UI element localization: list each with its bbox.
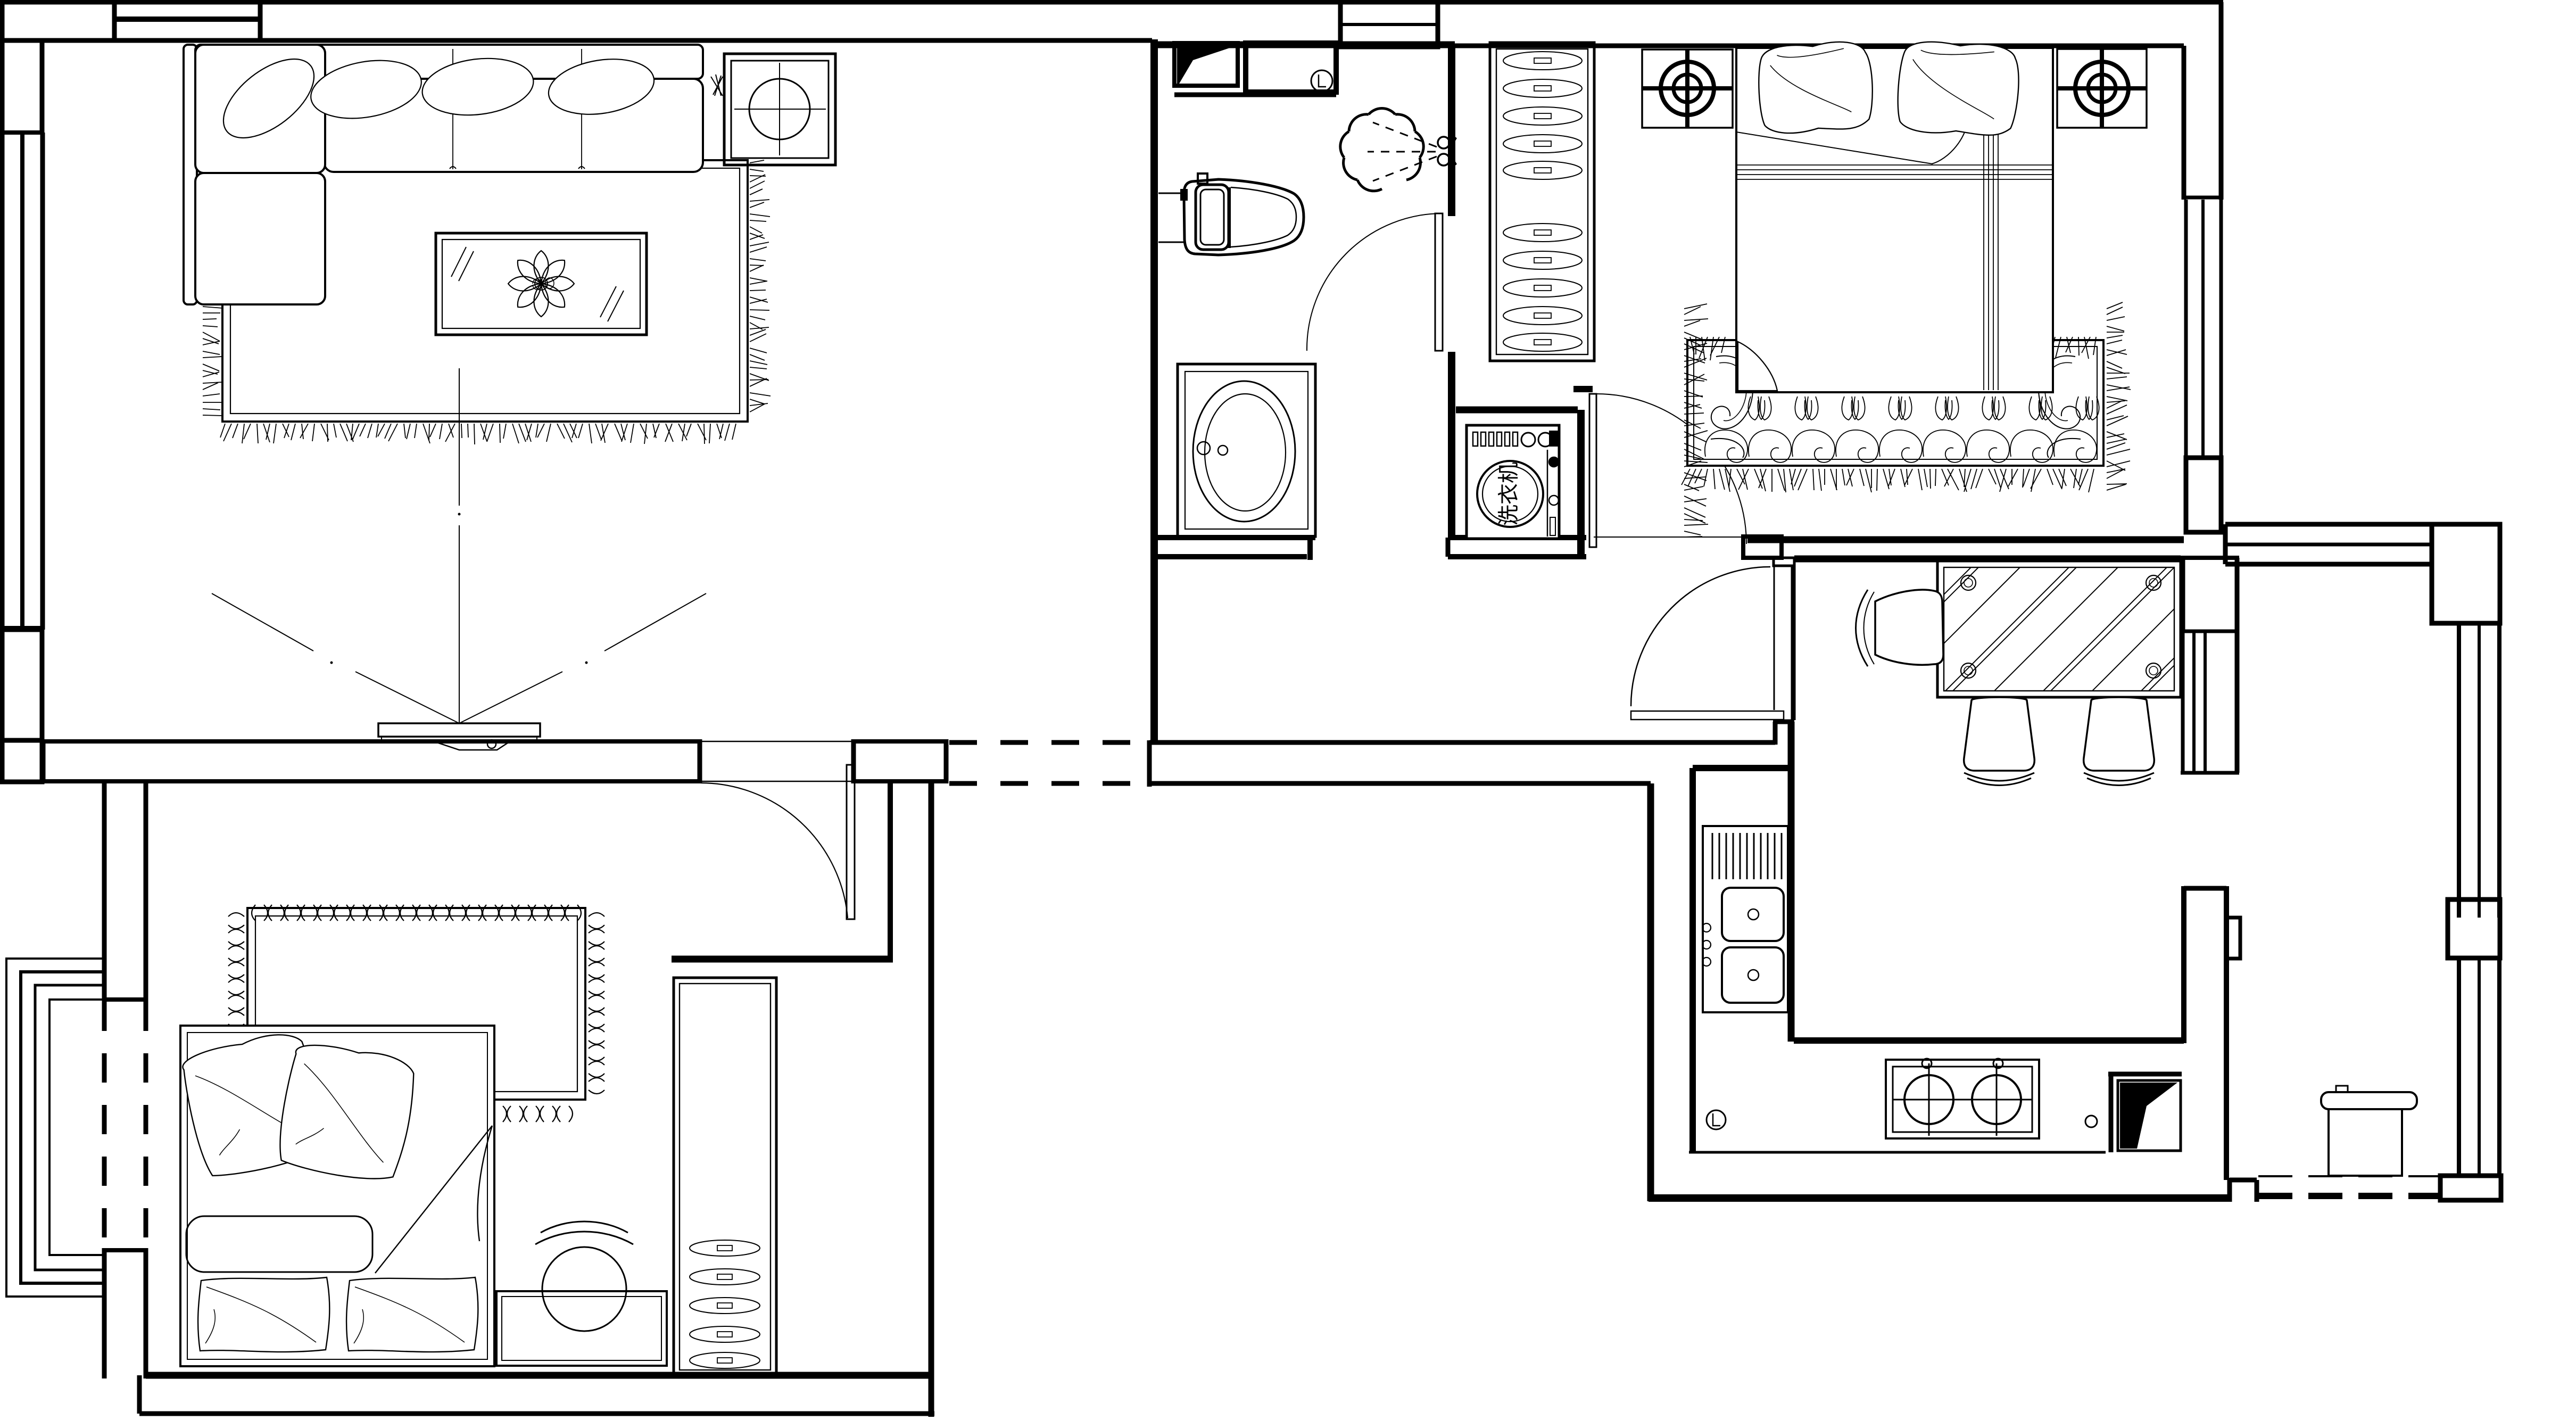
svg-text:洗衣机: 洗衣机 bbox=[1497, 462, 1521, 526]
